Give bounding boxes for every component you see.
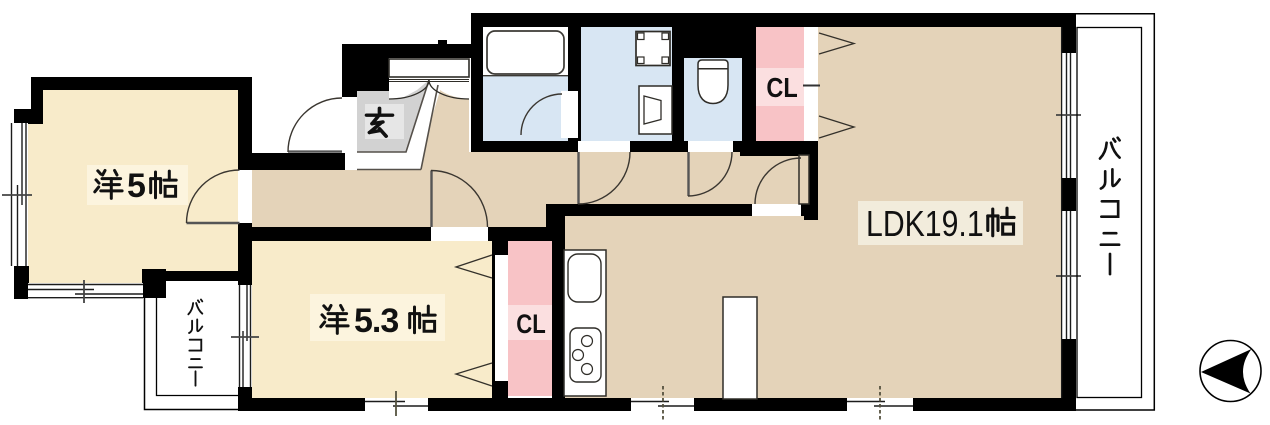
svg-text:CL: CL bbox=[516, 310, 545, 340]
svg-text:5.3: 5.3 bbox=[354, 302, 398, 340]
svg-text:CL: CL bbox=[766, 73, 797, 103]
svg-text:5: 5 bbox=[127, 167, 145, 205]
svg-text:LDK19.1: LDK19.1 bbox=[866, 205, 984, 245]
